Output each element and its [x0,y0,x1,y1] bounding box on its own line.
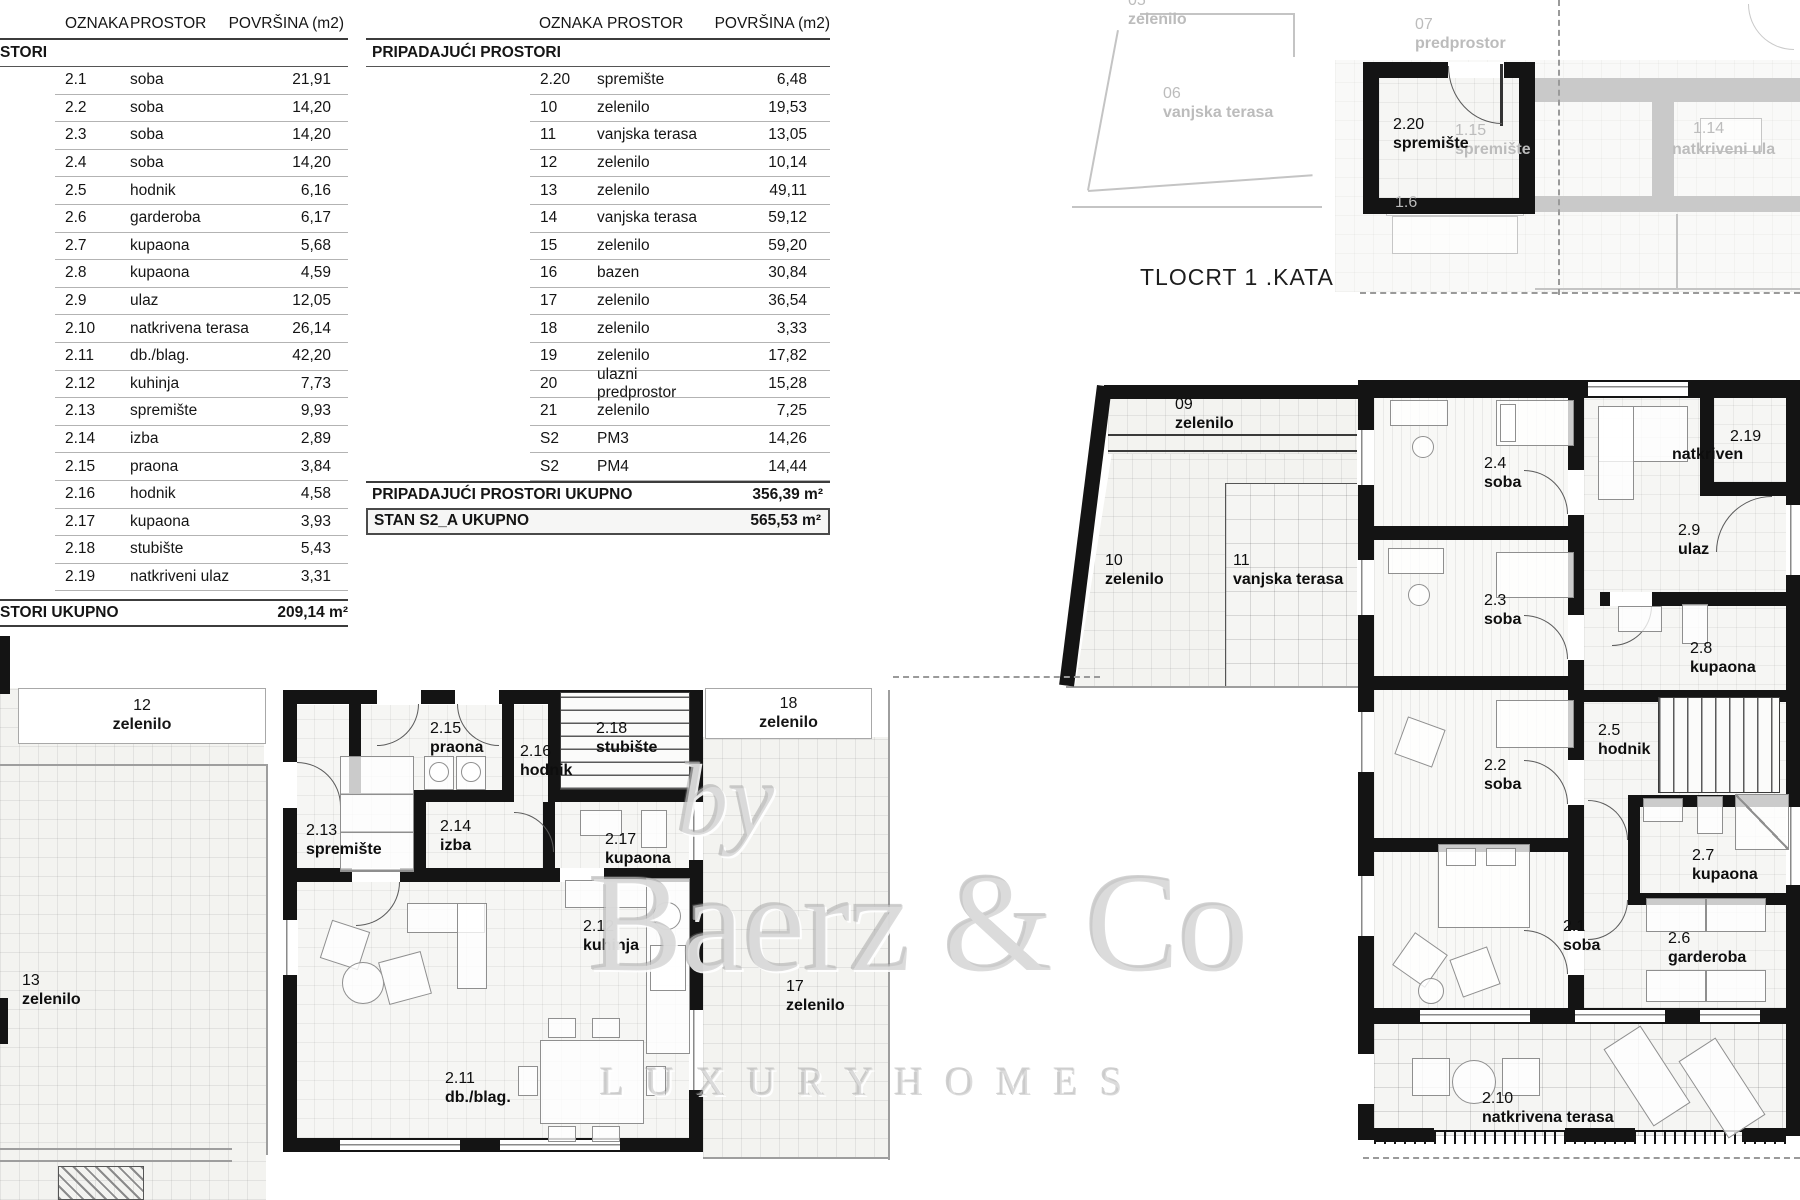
table-body: 2.20spremište6,4810zelenilo19,5311vanjsk… [366,67,830,481]
table-cell: 3,93 [253,513,348,531]
table-cell: soba [130,126,253,144]
table-cell: 2.19 [55,568,130,586]
table-cell: 2.5 [55,182,130,200]
room-label-2-14-izba: 2.14izba [440,818,471,856]
table-cell: PM4 [597,458,720,476]
table-row: 2.20spremište6,48 [530,67,830,95]
table-cell: soba [130,99,253,117]
table-cell: 13,05 [720,126,830,144]
table-row: 14vanjska terasa59,12 [530,205,830,233]
table-row: 2.5hodnik6,16 [55,177,348,205]
table-row: 2.8kupaona4,59 [55,260,348,288]
table-cell: 14,20 [253,99,348,117]
table-header: OZNAKA PROSTOR POVRŠINA (m2) [0,12,348,40]
room-label-2-11-db-blag: 2.11db./blag. [445,1070,511,1108]
table-cell: 2.4 [55,154,130,172]
room-label-2-15-praona: 2.15praona [430,720,483,758]
room-label-2-8-kupaona: 2.8kupaona [1690,640,1756,678]
table-cell: 14,44 [720,458,830,476]
room-label-05-zelenilo: 05zelenilo [1128,0,1187,30]
room-label-06-vanjska-terasa: 06vanjska terasa [1163,85,1273,123]
table-cell: 2.16 [55,485,130,503]
window [1588,382,1688,396]
shower [1735,794,1789,850]
room-label-10-zelenilo: 10zelenilo [1105,552,1164,590]
table-cell: stubište [130,540,253,558]
staircase [1658,697,1780,793]
column-header: OZNAKA [539,15,603,33]
room-label-12-zelenilo: 12zelenilo [18,688,266,744]
table-cell: 17,82 [720,347,830,365]
table-cell: zelenilo [597,237,720,255]
room-label-2-1-soba: 2.1soba [1563,918,1600,956]
table-row: 2.2soba14,20 [55,95,348,123]
table-grand-total-row: STAN S2_A UKUPNO 565,53 m² [366,508,830,535]
section-header: STORI [0,40,348,67]
room-label-09-zelenilo: 09zelenilo [1175,396,1234,434]
table-cell: soba [130,154,253,172]
table-cell: 2.8 [55,264,130,282]
table-cell: zelenilo [597,182,720,200]
room-label-13-zelenilo: 13zelenilo [22,972,81,1010]
boundary-dashed-line [1558,0,1560,295]
room-label-2-5-hodnik: 2.5hodnik [1598,722,1650,760]
room-label-2-2-soba: 2.2soba [1484,757,1521,795]
table-header: OZNAKA PROSTOR POVRŠINA (m2) [366,12,830,40]
table-row: 11vanjska terasa13,05 [530,122,830,150]
table-cell: 2.12 [55,375,130,393]
room-label-2-3-soba: 2.3soba [1484,592,1521,630]
room-label-2-6-garderoba: 2.6garderoba [1668,930,1746,968]
table-cell: 42,20 [253,347,348,365]
table-cell: 14,26 [720,430,830,448]
table-row: 2.1soba21,91 [55,67,348,95]
table-cell: zelenilo [597,154,720,172]
table-row: S2PM314,26 [530,426,830,454]
table-cell: PM3 [597,430,720,448]
column-header: PROSTOR [607,15,683,33]
table-cell: kupaona [130,237,253,255]
table-cell: spremište [130,402,253,420]
area-table-main-spaces: OZNAKA PROSTOR POVRŠINA (m2) STORI 2.1so… [0,12,348,627]
table-cell: 16 [530,264,597,282]
total-label: PRIPADAJUĆI PROSTORI UKUPNO [372,486,752,504]
table-row: 2.19natkriveni ulaz3,31 [55,564,348,592]
table-cell: zelenilo [597,320,720,338]
table-cell: vanjska terasa [597,209,720,227]
table-cell: 13 [530,182,597,200]
table-cell: 59,20 [720,237,830,255]
boundary-dashed-line [893,676,1100,678]
table-cell: 2.2 [55,99,130,117]
table-total-row: STORI UKUPNO 209,14 m² [0,599,348,627]
table-cell: 15,28 [720,375,830,393]
table-cell: 4,59 [253,264,348,282]
table-cell: 4,58 [253,485,348,503]
table-cell: S2 [530,430,597,448]
table-row: 10zelenilo19,53 [530,95,830,123]
table-row: 13zelenilo49,11 [530,177,830,205]
table-cell: 15 [530,237,597,255]
table-cell: 9,93 [253,402,348,420]
table-row: 16bazen30,84 [530,260,830,288]
table-cell: 3,33 [720,320,830,338]
table-body: 2.1soba21,912.2soba14,202.3soba14,202.4s… [0,67,348,591]
table-cell: kupaona [130,513,253,531]
table-row: S2PM414,44 [530,453,830,481]
table-cell: zelenilo [597,292,720,310]
table-row: 2.16hodnik4,58 [55,481,348,509]
table-row: 20ulazni predprostor15,28 [530,371,830,399]
table-row: 15zelenilo59,20 [530,233,830,261]
table-cell: natkriveni ulaz [130,568,253,586]
room-label-2-19-name: natkriven [1672,446,1743,465]
room-label-2-10-natkrivena-terasa: 2.10natkrivena terasa [1482,1090,1614,1128]
floor-plan-sheet: OZNAKA PROSTOR POVRŠINA (m2) STORI 2.1so… [0,0,1800,1200]
table-cell: 18 [530,320,597,338]
table-cell: praona [130,458,253,476]
table-row: 12zelenilo10,14 [530,150,830,178]
table-row: 2.13spremište9,93 [55,398,348,426]
table-row: 2.14izba2,89 [55,426,348,454]
total-value: 356,39 m² [752,486,830,504]
table-cell: 2.15 [55,458,130,476]
column-header: POVRŠINA (m2) [715,15,830,33]
door-arc-gray [1748,4,1794,50]
table-cell: 17 [530,292,597,310]
window [1786,505,1800,575]
table-row: 2.3soba14,20 [55,122,348,150]
table-cell: 6,16 [253,182,348,200]
room-label-1-6: 1.6 [1395,194,1417,213]
room-label-2-16-hodnik: 2.16hodnik [520,743,572,781]
table-cell: 36,54 [720,292,830,310]
table-cell: 14,20 [253,126,348,144]
grand-total-value: 565,53 m² [750,512,828,530]
room-label-1-14-code: 1.14 [1693,120,1724,139]
table-cell: 20 [530,375,597,393]
table-cell: 2.3 [55,126,130,144]
window [1357,430,1374,485]
window [1357,712,1374,772]
table-cell: 26,14 [253,320,348,338]
room-label-2-19-code: 2.19 [1730,428,1761,447]
terrace-door [1420,1010,1530,1022]
table-cell: 12,05 [253,292,348,310]
table-cell: db./blag. [130,347,253,365]
area-table-associated-spaces: OZNAKA PROSTOR POVRŠINA (m2) PRIPADAJUĆI… [366,12,830,535]
table-cell: 2.17 [55,513,130,531]
room-label-07-predprostor: 07predprostor [1415,16,1506,54]
table-cell: zelenilo [597,402,720,420]
column-header: POVRŠINA (m2) [229,15,344,33]
table-cell: 59,12 [720,209,830,227]
table-cell: 7,73 [253,375,348,393]
table-row: 2.12kuhinja7,73 [55,371,348,399]
table-cell: 21 [530,402,597,420]
table-cell: zelenilo [597,99,720,117]
table-cell: spremište [597,71,720,89]
table-cell: bazen [597,264,720,282]
table-cell: S2 [530,458,597,476]
table-cell: 7,25 [720,402,830,420]
table-cell: 10 [530,99,597,117]
table-cell: 2.10 [55,320,130,338]
table-cell: 49,11 [720,182,830,200]
column-header: PROSTOR [130,15,206,33]
table-row: 2.18stubište5,43 [55,536,348,564]
table-row: 2.10natkrivena terasa26,14 [55,315,348,343]
table-total-row: PRIPADAJUĆI PROSTORI UKUPNO 356,39 m² [366,481,830,508]
table-cell: 12 [530,154,597,172]
table-row: 18zelenilo3,33 [530,315,830,343]
table-cell: 5,68 [253,237,348,255]
sofa [457,903,487,989]
room-label-18-zelenilo: 18zelenilo [705,688,872,739]
table-row: 2.9ulaz12,05 [55,288,348,316]
table-cell: 19 [530,347,597,365]
room-label-2-18-stubiste: 2.18stubište [596,720,657,758]
room-label-2-7-kupaona: 2.7kupaona [1692,847,1758,885]
watermark-tagline: L U X U R Y H O M E S [600,1058,1128,1105]
table-cell: 2.1 [55,71,130,89]
column-header: OZNAKA [65,15,129,33]
table-cell: 5,43 [253,540,348,558]
table-row: 2.7kupaona5,68 [55,233,348,261]
table-cell: garderoba [130,209,253,227]
bed-gray [1392,216,1518,254]
table-cell: 2.13 [55,402,130,420]
table-cell: izba [130,430,253,448]
window [1357,876,1374,936]
room-label-2-13-spremiste: 2.13spremište [306,822,382,860]
table-cell: 6,48 [720,71,830,89]
table-cell: ulaz [130,292,253,310]
table-row: 2.11db./blag.42,20 [55,343,348,371]
room-label-2-20-spremiste: 2.20spremište [1393,116,1469,154]
table-cell: 10,14 [720,154,830,172]
table-cell: 2,89 [253,430,348,448]
window [282,920,298,975]
room-label-11-vanjska-terasa: 11vanjska terasa [1233,552,1343,590]
window [1357,560,1374,615]
table-cell: 3,84 [253,458,348,476]
table-cell: ulazni predprostor [597,366,720,402]
table-cell: vanjska terasa [597,126,720,144]
boundary-dashed-line [1363,1157,1800,1159]
table-cell: 6,17 [253,209,348,227]
table-row: 21zelenilo7,25 [530,398,830,426]
terrace-door [1700,1010,1760,1022]
watermark-brand: Baerz & Co [588,840,1246,1004]
table-cell: 2.18 [55,540,130,558]
table-cell: 2.11 [55,347,130,365]
table-cell: 2.9 [55,292,130,310]
table-row: 2.6garderoba6,17 [55,205,348,233]
table-cell: hodnik [130,485,253,503]
total-label: STORI UKUPNO [0,604,277,622]
table-cell: zelenilo [597,347,720,365]
table-row: 2.15praona3,84 [55,453,348,481]
table-cell: soba [130,71,253,89]
section-header: PRIPADAJUĆI PROSTORI [366,40,830,67]
table-row: 2.4soba14,20 [55,150,348,178]
boundary-dashed-line [1360,292,1800,294]
table-row: 2.17kupaona3,93 [55,509,348,537]
hatched-structure [58,1166,144,1200]
grand-total-label: STAN S2_A UKUPNO [374,512,750,530]
table-cell: 11 [530,126,597,144]
table-cell: 19,53 [720,99,830,117]
table-row: 17zelenilo36,54 [530,288,830,316]
table-cell: 2.20 [530,71,597,89]
table-cell: kuhinja [130,375,253,393]
window [340,1140,460,1150]
plan-title: TLOCRT 1 .KATA [1140,264,1334,291]
table-cell: 14,20 [253,154,348,172]
table-cell: kupaona [130,264,253,282]
room-label-2-4-soba: 2.4soba [1484,455,1521,493]
room-label-2-9-ulaz: 2.9ulaz [1678,522,1709,560]
table-cell: 2.7 [55,237,130,255]
table-cell: natkrivena terasa [130,320,253,338]
table-cell: 14 [530,209,597,227]
table-cell: 2.6 [55,209,130,227]
table-cell: 30,84 [720,264,830,282]
table-cell: 3,31 [253,568,348,586]
room-label-1-14-name: natkriveni ula [1672,141,1775,160]
terrace-door [1575,1010,1665,1022]
table-cell: hodnik [130,182,253,200]
table-cell: 2.14 [55,430,130,448]
table-cell: 21,91 [253,71,348,89]
total-value: 209,14 m² [277,604,348,622]
